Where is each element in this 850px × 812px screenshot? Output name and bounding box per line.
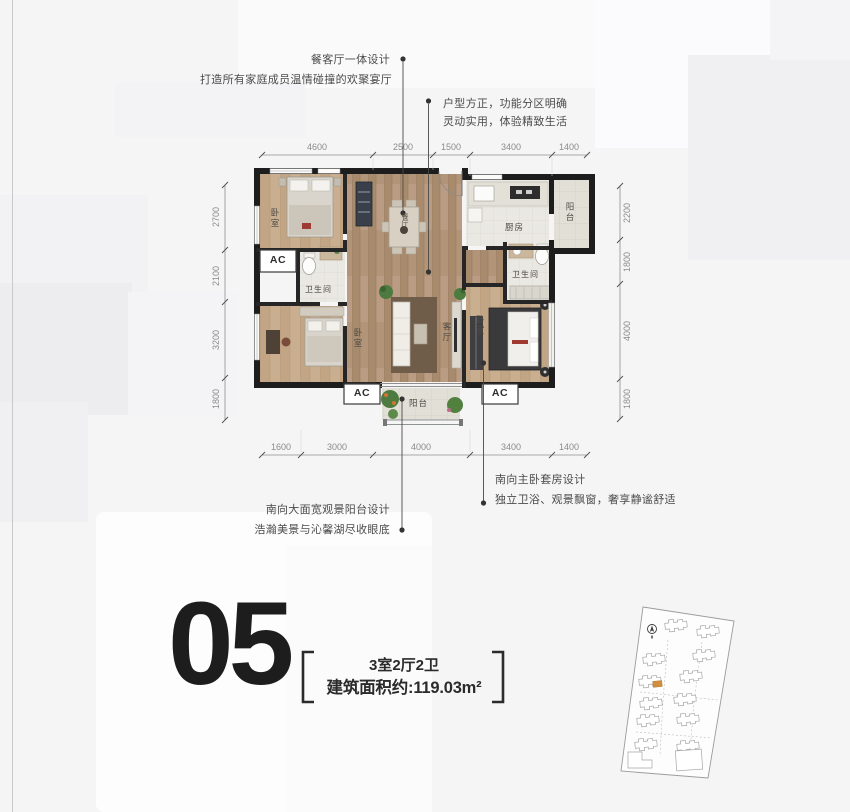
dim-top-4: 3400: [501, 142, 521, 152]
dim-left-1: 2700: [211, 207, 221, 227]
room-label-bathroom-left: 卫生间: [305, 284, 332, 295]
annotation-master-sub: 独立卫浴、观景飘窗，奢享静谧舒适: [495, 491, 676, 507]
dim-right-1: 2200: [622, 203, 632, 223]
dim-bottom-4: 3400: [501, 442, 521, 452]
floorplan-poster: 餐客厅一体设计 打造所有家庭成员温情碰撞的欢聚宴厅 户型方正，功能分区明确 灵动…: [0, 0, 850, 812]
room-label-bathroom-right: 卫生间: [512, 269, 539, 280]
dim-top-3: 1500: [441, 142, 461, 152]
room-label-kitchen: 厨房: [505, 221, 524, 233]
annotation-master-title: 南向主卧套房设计: [495, 471, 585, 487]
annotation-dining-sub: 打造所有家庭成员温情碰撞的欢聚宴厅: [200, 71, 390, 87]
ac-label-bottomright: AC: [482, 387, 518, 399]
annotation-balcony-title: 南向大面宽观景阳台设计: [250, 501, 390, 517]
unit-number: 05: [168, 596, 289, 693]
room-label-living: 客厅: [441, 322, 453, 343]
room-label-bedroom-bottomleft: 卧室: [352, 328, 364, 349]
unit-type: 3室2厅2卫: [316, 654, 492, 675]
annotation-layout-line2: 灵动实用，体验精致生活: [443, 113, 567, 129]
ac-label-topleft: AC: [260, 254, 296, 266]
dim-left-4: 1800: [211, 389, 221, 409]
annotation-layout-line1: 户型方正，功能分区明确: [443, 95, 567, 111]
room-label-bedroom-master: 卧室: [474, 315, 486, 336]
dim-top-1: 4600: [307, 142, 327, 152]
annotation-balcony-sub: 浩瀚美景与沁馨湖尽收眼底: [240, 521, 390, 537]
dim-bottom-5: 1400: [559, 442, 579, 452]
dim-bottom-2: 3000: [327, 442, 347, 452]
annotation-dining-title: 餐客厅一体设计: [250, 51, 390, 67]
room-label-balcony-bottom: 阳台: [409, 397, 428, 409]
dim-right-4: 1800: [622, 389, 632, 409]
dim-left-2: 2100: [211, 266, 221, 286]
dim-left-3: 3200: [211, 330, 221, 350]
dim-top-5: 1400: [559, 142, 579, 152]
dim-right-3: 4000: [622, 321, 632, 341]
ac-label-bottommid: AC: [344, 387, 380, 399]
room-label-dining: 餐厅: [399, 213, 409, 227]
room-label-balcony-right: 阳台: [564, 202, 576, 223]
dim-top-2: 2500: [393, 142, 413, 152]
dim-right-2: 1800: [622, 252, 632, 272]
dim-bottom-1: 1600: [271, 442, 291, 452]
highlighted-building: [653, 680, 663, 687]
site-plan: [621, 607, 734, 778]
room-label-bedroom-topleft: 卧室: [269, 208, 281, 229]
dim-bottom-3: 4000: [411, 442, 431, 452]
unit-area: 建筑面积约:119.03m²: [308, 674, 500, 698]
